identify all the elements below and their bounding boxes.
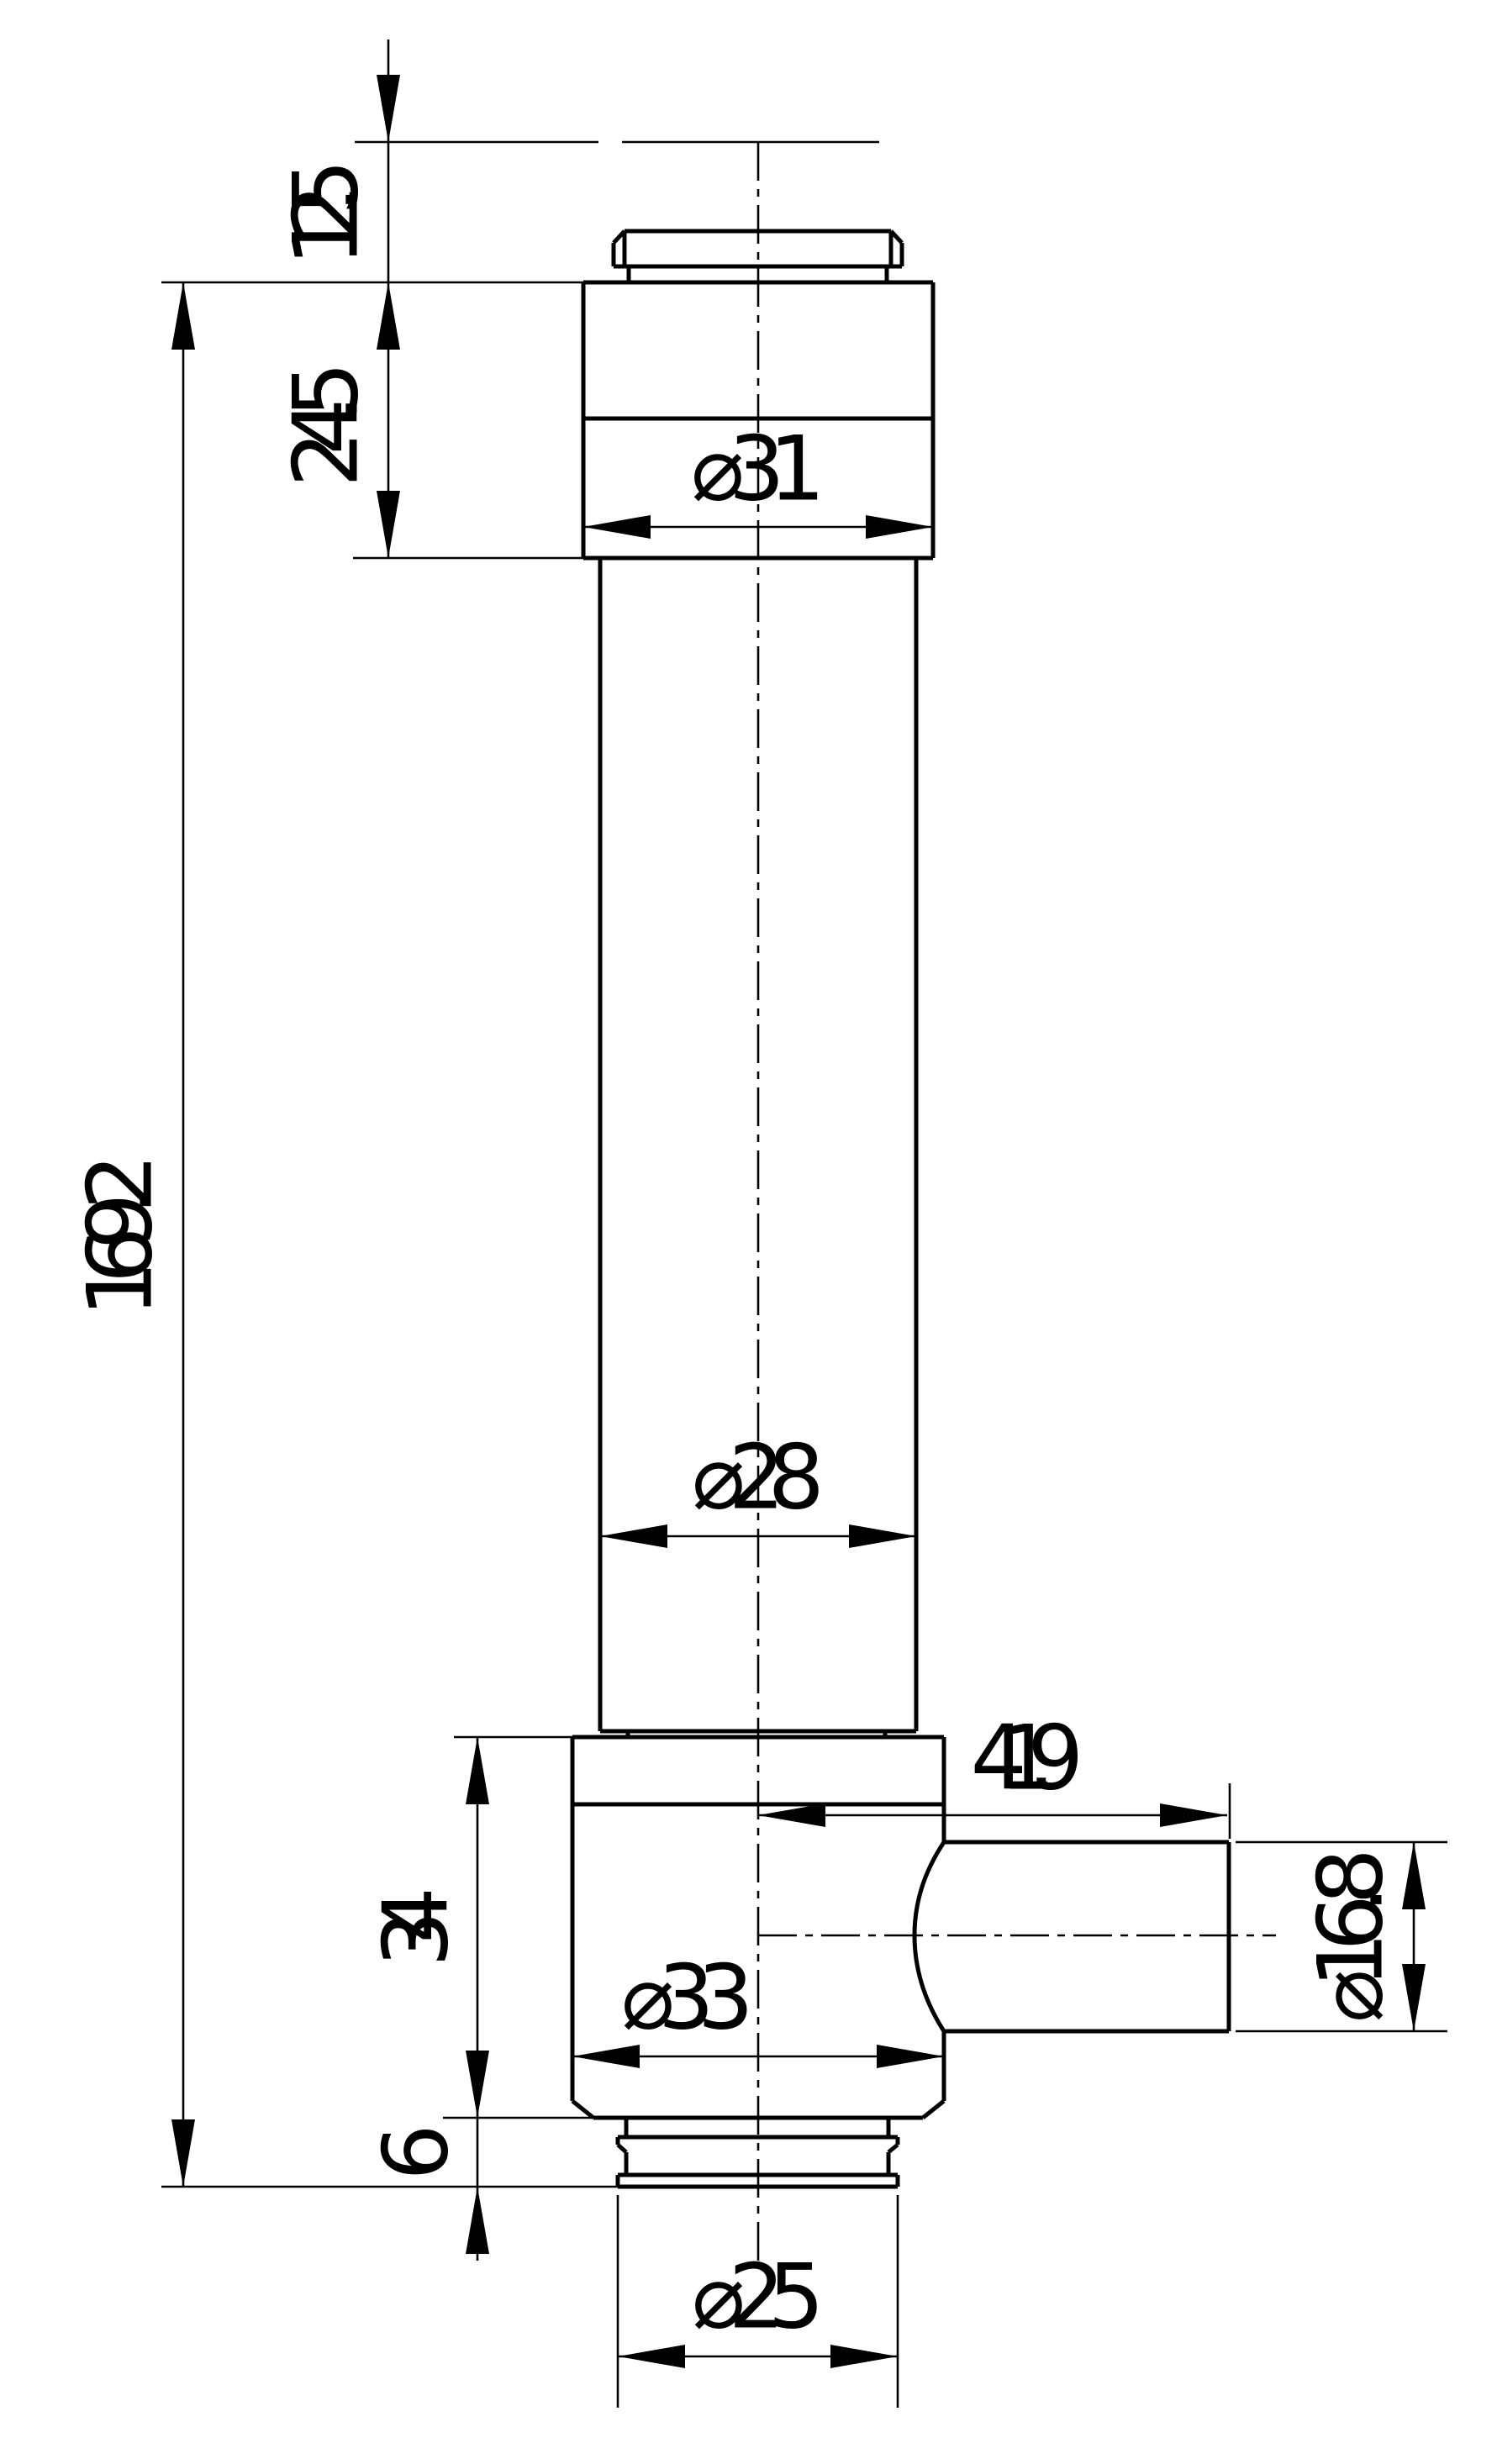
dim-label-head-height: 24.5 bbox=[275, 361, 378, 487]
dim-base-height-and-flange-height: 34 6 bbox=[365, 1737, 490, 2261]
technical-drawing-canvas: 169.2 12.5 24.5 34 6 ⌀31 ⌀28 ⌀33 bbox=[0, 0, 1497, 2464]
arrowhead-up bbox=[1402, 1842, 1426, 1909]
arrowhead-right bbox=[849, 1524, 916, 1548]
arrowhead-down bbox=[377, 75, 400, 142]
dim-label-overall-height: 169.2 bbox=[69, 1154, 172, 1318]
dim-label-port-length: 41.9 bbox=[971, 1707, 1084, 1810]
dim-head-diameter: ⌀31 bbox=[583, 418, 933, 540]
dim-label-head-diameter: ⌀31 bbox=[691, 418, 825, 521]
arrowhead-right bbox=[1160, 1803, 1227, 1827]
arrowhead-down bbox=[377, 491, 400, 558]
arrowhead-left bbox=[618, 2345, 685, 2368]
dim-label-tube-diameter: ⌀28 bbox=[692, 1426, 825, 1529]
side-port bbox=[915, 1842, 1229, 2031]
arrowhead-left bbox=[758, 1803, 825, 1827]
dim-label-base-diameter: ⌀33 bbox=[621, 1946, 754, 2050]
dim-label-spigot-diameter: ⌀25 bbox=[692, 2246, 825, 2349]
dim-label-port-diameter: ⌀16.8 bbox=[1299, 1848, 1403, 2023]
dim-port-diameter: ⌀16.8 bbox=[1299, 1842, 1426, 2031]
dim-label-top-extension: 12.5 bbox=[275, 159, 378, 266]
arrowhead-up bbox=[466, 2187, 489, 2254]
dim-label-base-height: 34 bbox=[365, 1887, 468, 1967]
arrowhead-up bbox=[377, 282, 400, 350]
dim-top-extension-and-head-height: 12.5 24.5 bbox=[275, 39, 401, 558]
arrowhead-left bbox=[583, 515, 651, 539]
arrowhead-right bbox=[830, 2345, 898, 2368]
drawing-sheet: 169.2 12.5 24.5 34 6 ⌀31 ⌀28 ⌀33 bbox=[0, 0, 1497, 2464]
arrowhead-right bbox=[866, 515, 933, 539]
dim-port-length: 41.9 bbox=[758, 1707, 1227, 1828]
arrowhead-left bbox=[600, 1524, 667, 1548]
dim-spigot-diameter: ⌀25 bbox=[618, 2246, 898, 2369]
arrowhead-up bbox=[171, 282, 195, 350]
arrowhead-right bbox=[877, 2045, 944, 2068]
centerlines bbox=[758, 142, 1276, 2265]
arrowhead-down bbox=[466, 2051, 489, 2118]
arrowhead-down bbox=[1402, 1964, 1426, 2031]
port-intersection-curve bbox=[915, 1842, 944, 2031]
dim-overall-height: 169.2 bbox=[69, 282, 196, 2187]
dim-label-flange-height: 6 bbox=[365, 2124, 468, 2180]
arrowhead-up bbox=[466, 1737, 489, 1804]
arrowhead-down bbox=[171, 2119, 195, 2187]
